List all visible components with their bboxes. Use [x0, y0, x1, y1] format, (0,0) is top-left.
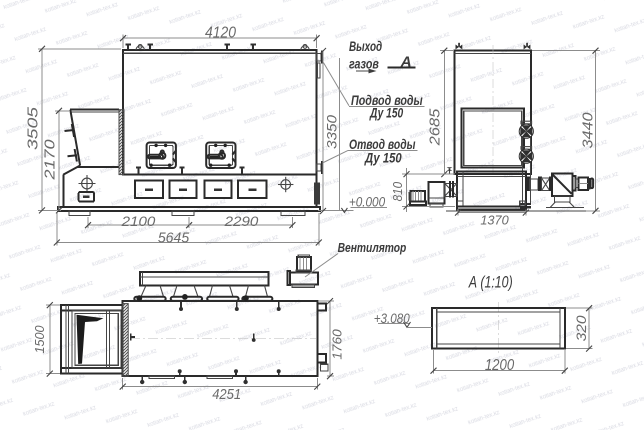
- svg-text:1760: 1760: [330, 329, 345, 360]
- svg-text:А (1:10): А (1:10): [468, 273, 513, 292]
- svg-text:810: 810: [390, 181, 405, 201]
- svg-text:4251: 4251: [212, 387, 241, 403]
- svg-text:4120: 4120: [205, 25, 236, 42]
- svg-text:2100: 2100: [121, 214, 156, 229]
- svg-text:3350: 3350: [325, 114, 340, 149]
- svg-text:Ду 150: Ду 150: [364, 149, 402, 165]
- svg-text:Вентилятор: Вентилятор: [338, 240, 407, 255]
- svg-text:Выход: Выход: [349, 38, 382, 54]
- svg-text:1370: 1370: [480, 212, 509, 227]
- svg-text:2685: 2685: [427, 108, 443, 147]
- svg-text:3505: 3505: [25, 106, 42, 150]
- svg-text:2290: 2290: [224, 214, 259, 229]
- svg-text:Ду 150: Ду 150: [369, 105, 403, 121]
- svg-text:газов: газов: [349, 55, 379, 71]
- svg-text:320: 320: [574, 315, 589, 342]
- svg-text:2170: 2170: [42, 139, 59, 181]
- svg-text:5645: 5645: [158, 231, 190, 247]
- svg-text:1500: 1500: [32, 325, 47, 354]
- svg-text:1200: 1200: [485, 357, 514, 374]
- svg-text:3440: 3440: [581, 113, 597, 149]
